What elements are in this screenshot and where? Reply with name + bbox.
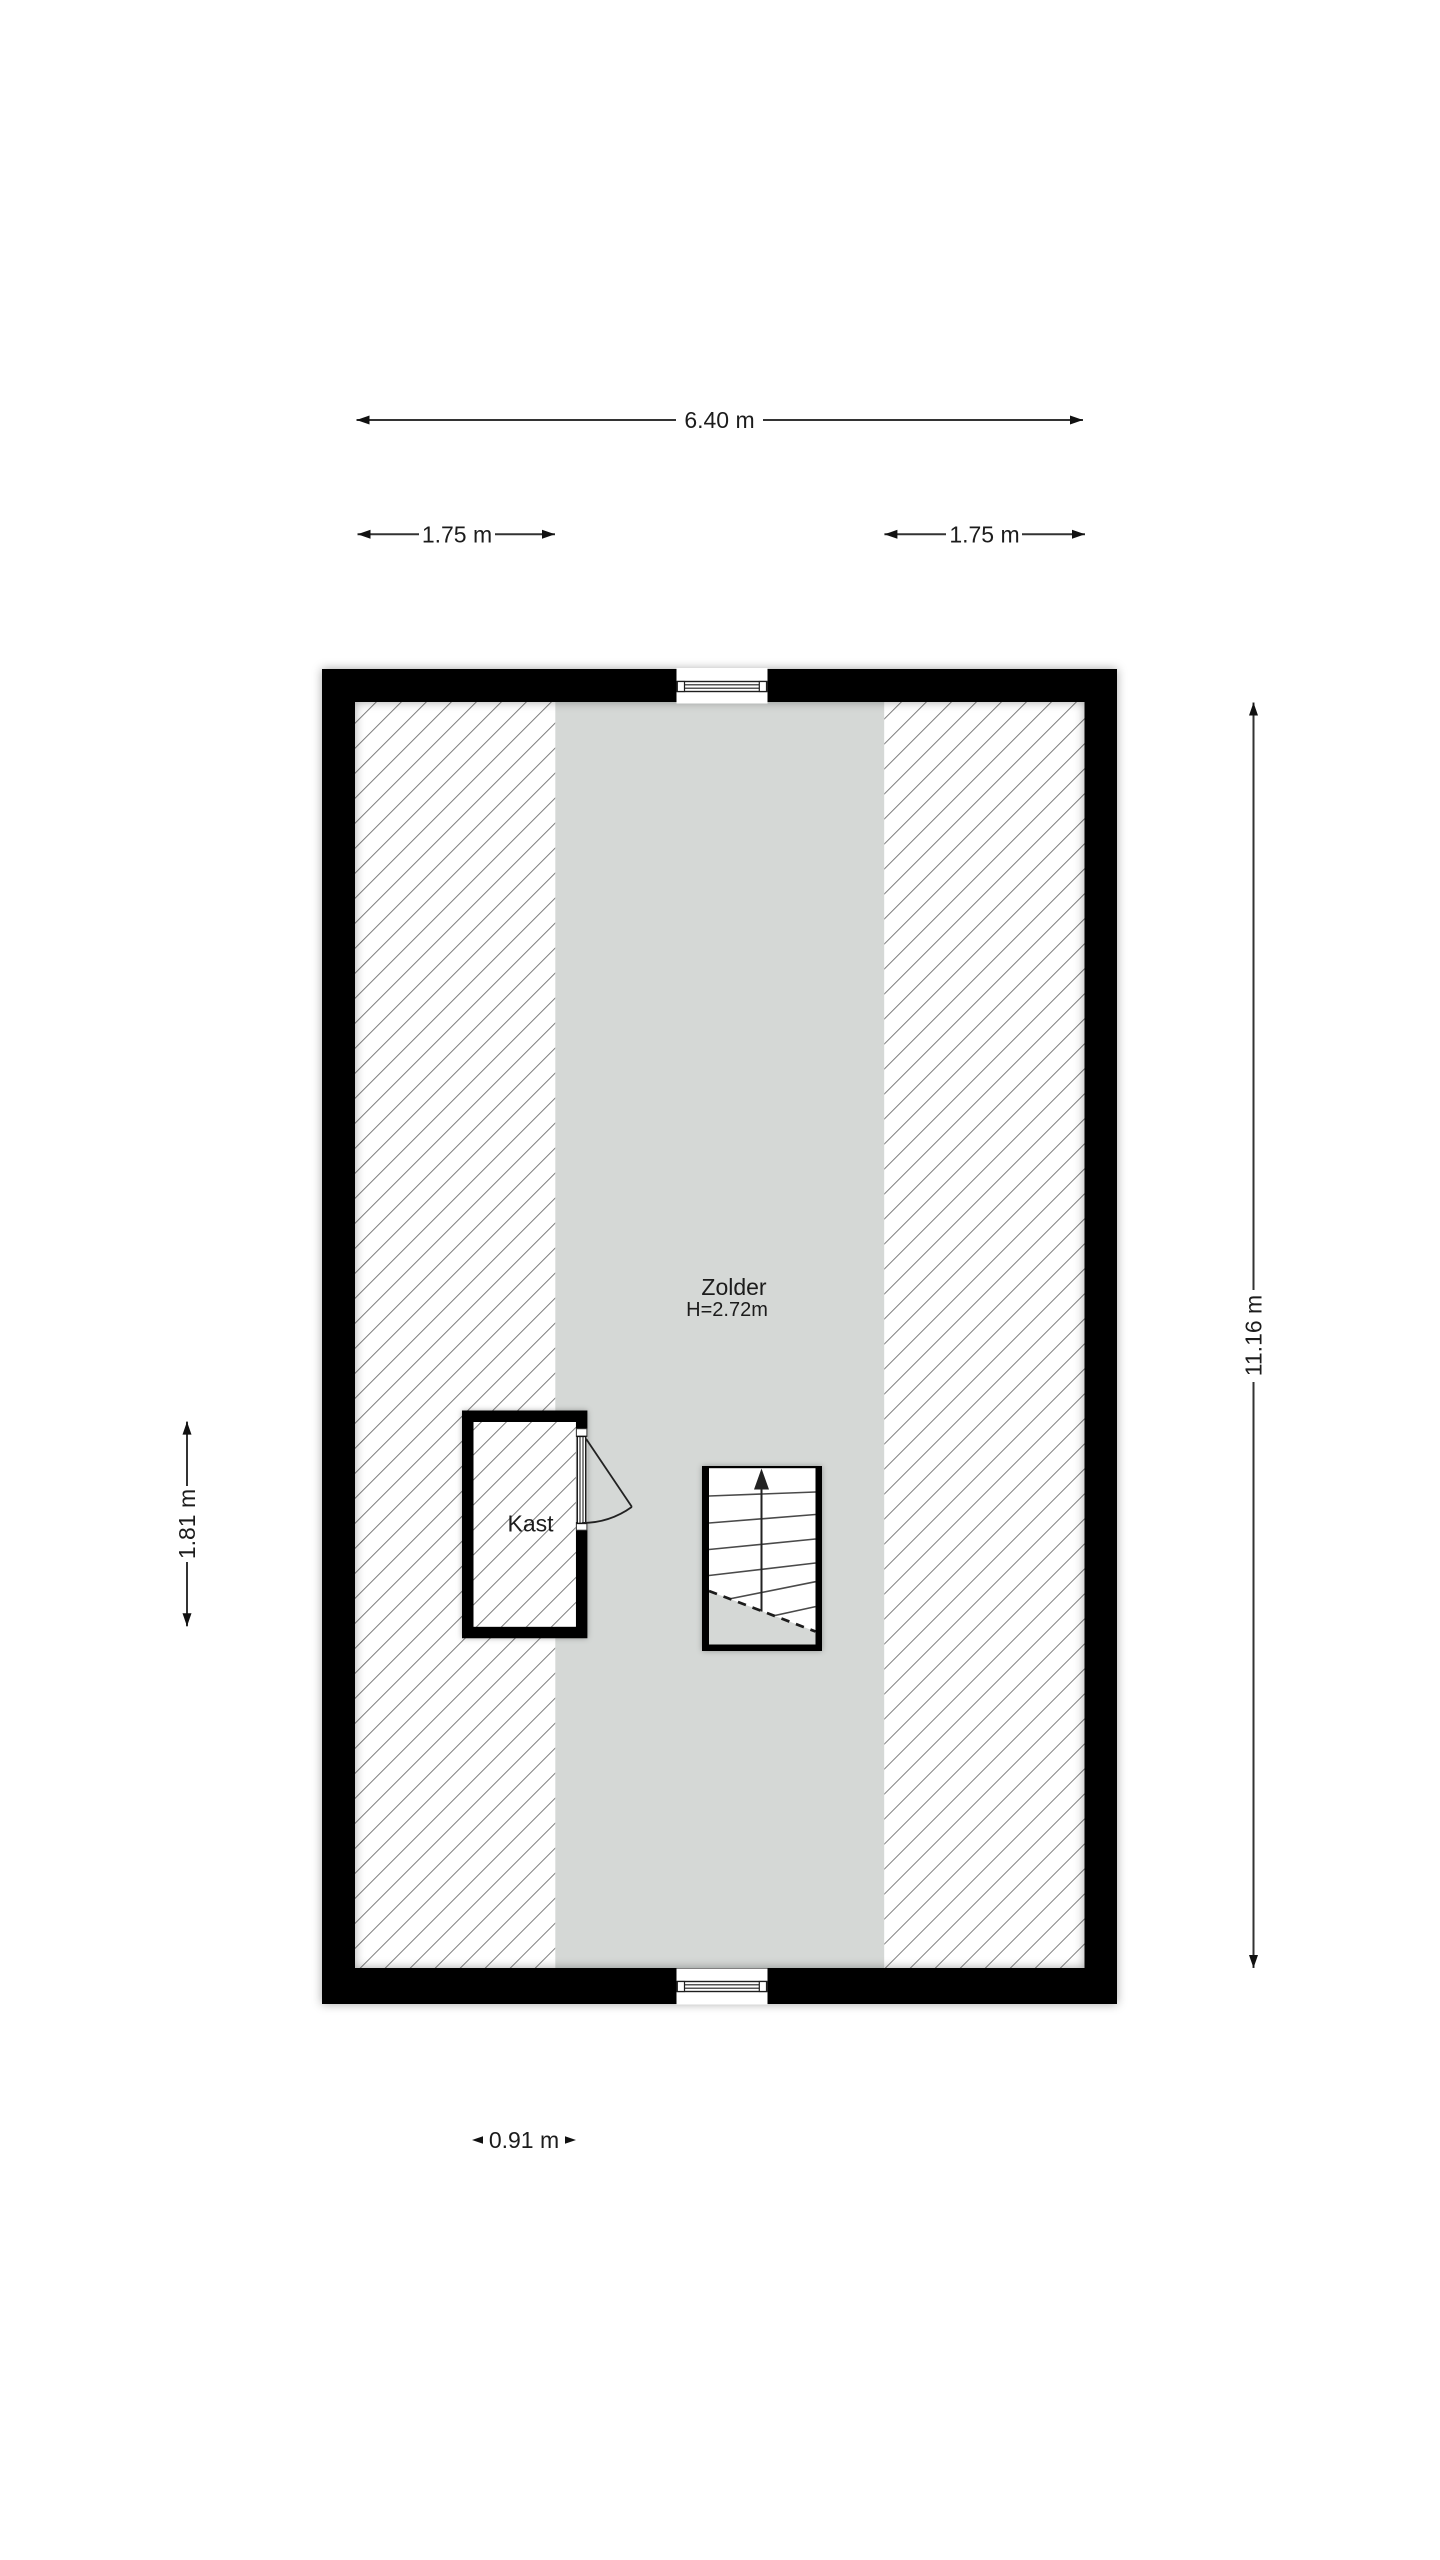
svg-text:Zolder: Zolder bbox=[701, 1274, 767, 1300]
svg-text:1.75 m: 1.75 m bbox=[949, 521, 1019, 547]
svg-text:1.75 m: 1.75 m bbox=[422, 521, 492, 547]
svg-text:0.91 m: 0.91 m bbox=[489, 2127, 559, 2153]
svg-text:Kast: Kast bbox=[507, 1511, 554, 1537]
svg-text:11.16 m: 11.16 m bbox=[1241, 1295, 1267, 1376]
svg-text:H=2.72m: H=2.72m bbox=[686, 1299, 768, 1321]
svg-text:1.81 m: 1.81 m bbox=[174, 1489, 200, 1559]
svg-text:6.40 m: 6.40 m bbox=[684, 407, 754, 433]
